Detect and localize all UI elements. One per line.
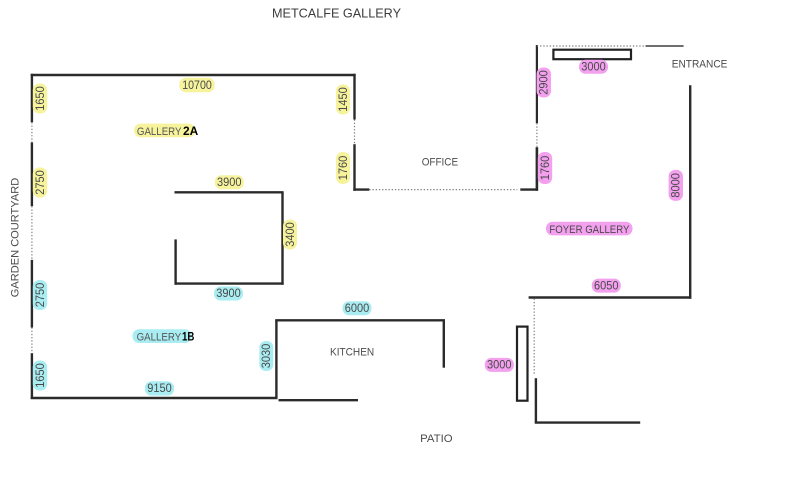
svg-text:1760: 1760 bbox=[336, 156, 350, 181]
svg-text:6050: 6050 bbox=[594, 278, 619, 292]
svg-text:OFFICE: OFFICE bbox=[422, 156, 459, 168]
svg-text:ENTRANCE: ENTRANCE bbox=[672, 59, 728, 71]
svg-text:3030: 3030 bbox=[259, 344, 273, 369]
svg-text:10700: 10700 bbox=[182, 78, 212, 92]
svg-text:9150: 9150 bbox=[147, 381, 172, 395]
svg-text:3000: 3000 bbox=[581, 60, 606, 74]
svg-text:1650: 1650 bbox=[33, 363, 47, 388]
svg-text:GALLERY: GALLERY bbox=[137, 126, 182, 138]
svg-text:GARDEN COURTYARD: GARDEN COURTYARD bbox=[10, 178, 22, 297]
svg-text:3400: 3400 bbox=[283, 222, 297, 247]
svg-text:1650: 1650 bbox=[33, 86, 47, 111]
svg-text:2750: 2750 bbox=[33, 170, 47, 195]
svg-text:2750: 2750 bbox=[33, 283, 47, 308]
svg-text:6000: 6000 bbox=[345, 301, 370, 315]
svg-text:2A: 2A bbox=[183, 125, 199, 138]
svg-text:3900: 3900 bbox=[217, 175, 242, 189]
svg-text:GALLERY: GALLERY bbox=[137, 331, 182, 343]
svg-text:1760: 1760 bbox=[538, 156, 552, 181]
svg-text:METCALFE GALLERY: METCALFE GALLERY bbox=[272, 6, 401, 21]
svg-text:FOYER GALLERY: FOYER GALLERY bbox=[549, 224, 630, 236]
svg-text:3900: 3900 bbox=[216, 286, 241, 300]
svg-text:1B: 1B bbox=[182, 331, 194, 344]
svg-text:2900: 2900 bbox=[537, 70, 551, 95]
svg-text:8000: 8000 bbox=[669, 173, 683, 198]
svg-text:PATIO: PATIO bbox=[420, 433, 453, 445]
svg-text:3000: 3000 bbox=[487, 358, 512, 372]
svg-text:KITCHEN: KITCHEN bbox=[330, 347, 374, 359]
svg-text:1450: 1450 bbox=[336, 87, 350, 112]
